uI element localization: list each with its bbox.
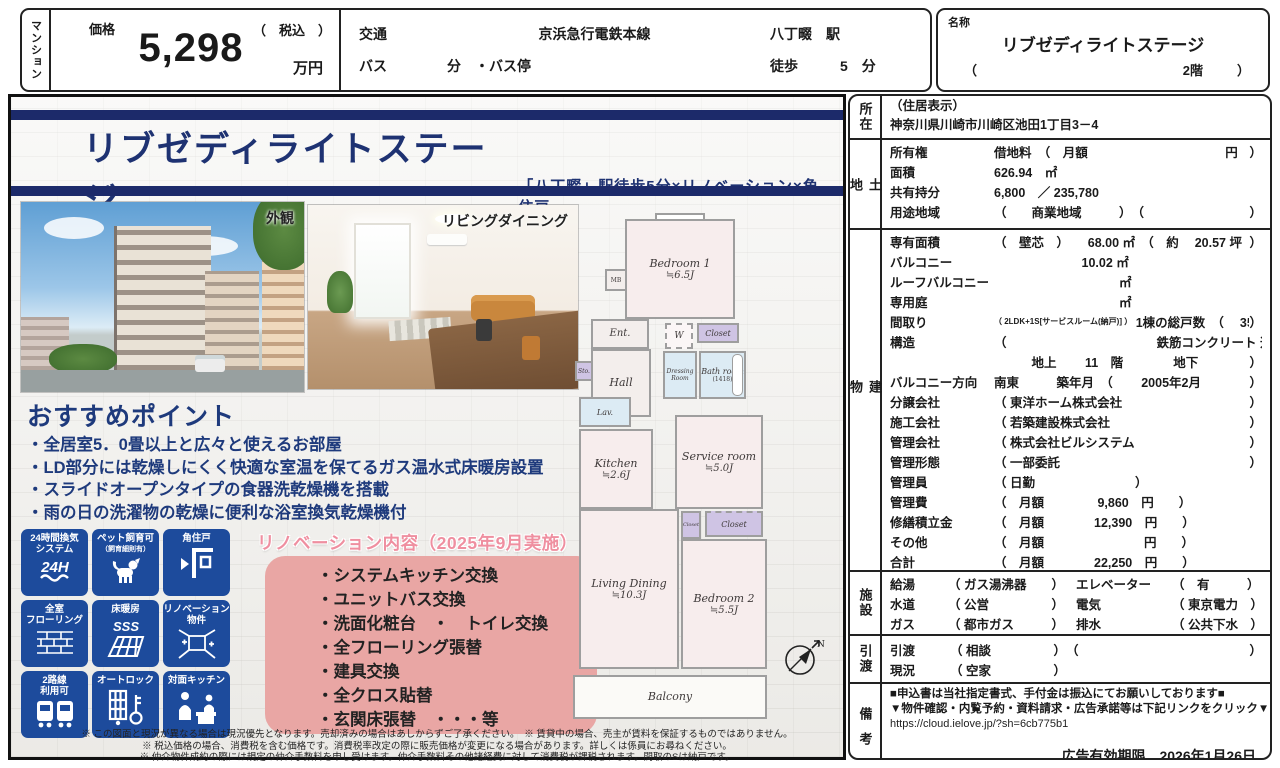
corner-unit-icon — [178, 546, 216, 582]
cloud-shape — [44, 217, 104, 239]
building-row: 施工会社（ 若築建設株式会社） — [890, 411, 1266, 431]
address-display-label: （住居表示） — [890, 97, 1266, 116]
exterior-photo: 外観 — [21, 202, 304, 392]
room-kitchen: Kitchen ≒2.6J — [579, 429, 653, 509]
room-closet2: Closet — [681, 511, 701, 539]
name-label: 名称 — [938, 10, 1268, 30]
room-closet3: Closet — [705, 511, 763, 537]
compass-icon: N — [779, 633, 827, 681]
counter-kitchen-icon — [176, 688, 218, 728]
floor-plan: Bedroom 1 ≒6.5J MB Ent. Hall W Closet Dr… — [567, 201, 845, 721]
chair-shape — [476, 319, 492, 341]
building-row: バルコニー方向南東 築年月 （ 2005年2月） — [890, 371, 1266, 391]
renovation-item: ・全クロス貼替 — [317, 684, 597, 708]
section-location: 所在 （住居表示） 神奈川県川崎市川崎区池田1丁目3－4 — [850, 96, 1270, 140]
floor-line: （ 2階 ） — [938, 56, 1268, 79]
plant-shape — [327, 271, 353, 313]
point-item: ・LD部分には乾燥しにくく快適な室温を保てるガス温水式床暖房設置 — [27, 457, 582, 480]
van-shape — [195, 355, 225, 372]
room-dressing: Dressing Room — [663, 351, 697, 399]
price-unit: 万円 — [293, 57, 323, 78]
two-lines-icon — [35, 699, 75, 729]
land-row: 面積626.94 ㎡ — [890, 161, 1266, 181]
room-living-dining: Living Dining ≒10.3J — [579, 509, 679, 669]
ventilation-24h-icon: 24H — [35, 557, 75, 585]
property-name: リブゼディライトステージ — [938, 31, 1268, 56]
section-land: 土地 所有権借地料 （ 月額 円） 面積626.94 ㎡ 共有持分6,800 ／… — [850, 140, 1270, 230]
address-value: 神奈川県川崎市川崎区池田1丁目3－4 — [890, 116, 1266, 135]
building-row: 管理形態（ 一部委託） — [890, 451, 1266, 471]
point-item: ・雨の日の洗濯物の乾燥に便利な浴室換気乾燥機付 — [27, 502, 582, 525]
renovation-item: ・洗面化粧台 ・ トイレ交換 — [317, 612, 597, 636]
room-bedroom1: Bedroom 1 ≒6.5J — [625, 219, 735, 319]
section-handover: 引渡 引渡（ 相談 ） （） 現況（ 空家 ） — [850, 636, 1270, 684]
aircon-shape — [427, 234, 467, 245]
transport-label: 交通 — [359, 24, 419, 44]
road-shape — [21, 370, 304, 392]
price-value: 5,298 — [106, 26, 276, 71]
exterior-photo-label: 外観 — [266, 208, 294, 228]
badge-counter-kitchen: 対面キッチン — [163, 671, 230, 738]
building-row: 管理員（ 日勤 ） — [890, 471, 1266, 491]
floor-heating-icon: SSS — [106, 617, 146, 659]
remarks-line2: ▼物件確認・内覧予約・資料請求・広告承諾等は下記リンクをクリック▼ — [890, 702, 1266, 717]
room-closet1: Closet — [697, 323, 739, 343]
handover-row: 現況（ 空家 ） — [890, 659, 1266, 679]
renovation-item: ・システムキッチン交換 — [317, 564, 597, 588]
walk-time: 徒歩 5 分 — [770, 56, 920, 76]
badge-24h-ventilation: 24時間換気 システム 24H — [21, 529, 88, 596]
header-name-box: 名称 リブゼディライトステージ （ 2階 ） — [936, 8, 1270, 92]
land-row: 用途地域（ 商業地域 ） （） — [890, 201, 1266, 221]
section-facilities: 施設 給湯（ ガス湯沸器 ）エレベーター（ 有 ） 水道（ 公営 ）電気（ 東京… — [850, 572, 1270, 636]
header-main-box: マンション 価格 5,298 （ 税込 ） 万円 交通 京浜急行電鉄本線 八丁畷… — [20, 8, 932, 92]
badge-autolock: オートロック — [92, 671, 159, 738]
floor-number: 2階 — [1183, 60, 1203, 79]
price-tax-note: （ 税込 ） — [253, 20, 331, 39]
section-label-building: 建物 — [850, 230, 882, 570]
bathtub-shape — [732, 354, 743, 396]
bus-info: 分 ・バス停 — [419, 56, 770, 76]
point-item: ・スライドオープンタイプの食器洗乾燥機を搭載 — [27, 479, 582, 502]
building-row: 専用庭 ㎡ — [890, 291, 1266, 311]
section-label-remarks: 備考 — [850, 684, 882, 760]
price-section: 価格 5,298 （ 税込 ） 万円 — [51, 10, 341, 90]
property-link[interactable]: https://cloud.ielove.jp/?sh=6cb775b1 — [890, 717, 1266, 732]
main-building-shape — [117, 226, 210, 370]
bus-label: バス — [359, 56, 419, 76]
feature-badges: 24時間換気 システム 24H ペット飼育可 （飼育細則有） 角住戸 — [21, 529, 233, 738]
renovation-item: ・ユニットバス交換 — [317, 588, 597, 612]
flooring-icon — [35, 628, 75, 658]
facility-row: 水道（ 公営 ）電気（ 東京電力 ） — [890, 593, 1266, 613]
building-row: 間取り（ 2LDK+1S[サービスルーム(納戸)] ） 1棟の総戸数 （ 35 … — [890, 311, 1266, 331]
fine-print-line: ※ 仲介物件成約の際には規定の仲介手数料を申し受けます。仲介手数料その他諸経費に… — [41, 752, 833, 764]
svg-text:SSS: SSS — [112, 619, 138, 634]
renovation-item: ・全フローリング張替 — [317, 636, 597, 660]
room-walkin: W — [665, 323, 693, 349]
navy-bar-top — [11, 110, 843, 120]
renovation-item: ・建具交換 — [317, 660, 597, 684]
ad-expiry-date: 2026年1月26日 — [1159, 746, 1256, 760]
points-title: おすすめポイント — [27, 397, 235, 433]
building-row: 地上 11 階 地下 階建） — [890, 351, 1266, 371]
balcony: Balcony — [573, 675, 767, 719]
ad-expiry-label: 広告有効期限 — [1061, 746, 1145, 760]
building-row: その他（ 月額 円 ） — [890, 531, 1266, 551]
window-shape — [354, 223, 411, 319]
section-label-land: 土地 — [850, 140, 882, 228]
living-dining-photo-label: リビングダイニング — [442, 211, 568, 231]
facility-row: ガス（ 都市ガス ）排水（ 公共下水 ） — [890, 613, 1266, 633]
room-lavatory: Lav. — [579, 397, 631, 427]
section-label-handover: 引渡 — [850, 636, 882, 682]
chair-shape — [522, 336, 540, 360]
paren-open: （ — [964, 60, 977, 79]
badge-corner-unit: 角住戸 — [163, 529, 230, 596]
building-row: 管理会社（ 株式会社ビルシステム） — [890, 431, 1266, 451]
fine-print: ※ この図面と現況が異なる場合は現況優先となります。売却済みの場合はあしからずご… — [41, 729, 833, 764]
section-label-location: 所在 — [850, 96, 882, 138]
pet-allowed-icon — [108, 557, 144, 585]
building-row: 管理費（ 月額 9,860 円 ） — [890, 491, 1266, 511]
land-row: 所有権借地料 （ 月額 円） — [890, 141, 1266, 161]
navy-bar-bottom — [11, 186, 843, 196]
room-bedroom2: Bedroom 2 ≒5.5J — [681, 539, 767, 669]
remarks-line1: ■申込書は当社指定書式、手付金は振込にてお願いしております■ — [890, 687, 1266, 702]
room-mb: MB — [605, 269, 627, 291]
autolock-icon — [106, 688, 146, 728]
room-service: Service room ≒5.0J — [675, 415, 763, 509]
flyer-left-panel: リブゼディライトステージ 「八丁畷」駅徒歩5分×リノベーション×角住戸 外観 リ… — [8, 94, 846, 760]
building-row: 専有面積（ 壁芯 ） 68.00 ㎡ （ 約 20.57 坪） — [890, 231, 1266, 251]
details-panel: 所在 （住居表示） 神奈川県川崎市川崎区池田1丁目3－4 土地 所有権借地料 （… — [848, 94, 1272, 760]
room-storage: Sto. — [575, 361, 593, 381]
point-item: ・全居室5．0畳以上と広々と使えるお部屋 — [27, 434, 582, 457]
points-list: ・全居室5．0畳以上と広々と使えるお部屋・LD部分には乾燥しにくく快適な室温を保… — [27, 434, 582, 524]
rail-line: 京浜急行電鉄本線 — [419, 24, 770, 44]
facility-row: 給湯（ ガス湯沸器 ）エレベーター（ 有 ） — [890, 573, 1266, 593]
fine-print-line: ※ 税込価格の場合、消費税を含む価格です。消費税率改定の際に販売価格が変更になる… — [41, 741, 833, 753]
living-dining-photo: リビングダイニング — [308, 205, 578, 389]
building-row: 合計（ 月額 22,250 円 ） — [890, 551, 1266, 570]
room-entrance: Ent. — [591, 319, 649, 349]
handover-row: 引渡（ 相談 ） （） — [890, 639, 1266, 659]
building-row: 修繕積立金（ 月額 12,390 円 ） — [890, 511, 1266, 531]
badge-floor-heating: 床暖房 SSS — [92, 600, 159, 667]
building-row: 構造（ 鉄筋コンクリート 造 — [890, 331, 1266, 351]
renovated-icon — [177, 628, 217, 660]
section-remarks: 備考 ■申込書は当社指定書式、手付金は振込にてお願いしております■ ▼物件確認・… — [850, 684, 1270, 760]
property-type-label: マンション — [22, 10, 51, 90]
renovation-box: ・システムキッチン交換・ユニットバス交換・洗面化粧台 ・ トイレ交換・全フローリ… — [265, 556, 597, 734]
svg-text:N: N — [817, 640, 825, 650]
building-row: ルーフバルコニー ㎡ — [890, 271, 1266, 291]
badge-pet-allowed: ペット飼育可 （飼育細則有） — [92, 529, 159, 596]
section-building: 建物 専有面積（ 壁芯 ） 68.00 ㎡ （ 約 20.57 坪） バルコニー… — [850, 230, 1270, 572]
svg-text:24H: 24H — [40, 559, 70, 576]
badge-two-lines: 2路線 利用可 — [21, 671, 88, 738]
building-shape — [262, 256, 304, 370]
renovation-title: リノベーション内容（2025年9月実施） — [257, 530, 578, 555]
section-label-facilities: 施設 — [850, 572, 882, 634]
building-row: 分譲会社（ 東洋ホーム株式会社） — [890, 391, 1266, 411]
building-row: バルコニー 10.02 ㎡ — [890, 251, 1266, 271]
badge-renovated: リノベーション 物件 — [163, 600, 230, 667]
land-row: 共有持分6,800 ／ 235,780 — [890, 181, 1266, 201]
badge-flooring: 全室 フローリング — [21, 600, 88, 667]
fine-print-line: ※ この図面と現況が異なる場合は現況優先となります。売却済みの場合はあしからずご… — [41, 729, 833, 741]
station-name: 八丁畷 駅 — [770, 24, 920, 44]
transport-section: 交通 京浜急行電鉄本線 八丁畷 駅 バス 分 ・バス停 徒歩 5 分 — [341, 10, 930, 90]
paren-close: ） — [1237, 60, 1250, 79]
